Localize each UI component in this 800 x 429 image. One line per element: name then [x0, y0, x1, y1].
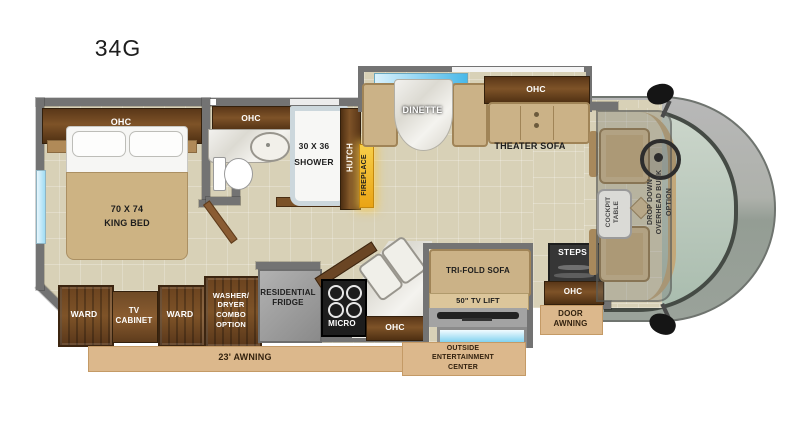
king-bed-label: 70 X 74 KING BED	[66, 198, 188, 234]
kitchen-ohc-label: OHC	[366, 316, 424, 339]
theater-sofa	[488, 102, 590, 144]
shower-label: 30 X 36 SHOWER	[290, 134, 338, 174]
tv-lift-label: 50" TV LIFT	[429, 293, 527, 308]
door-awning-label: DOOR AWNING	[540, 305, 601, 333]
pillow	[72, 131, 126, 157]
theater-sofa-ohc-label: OHC	[484, 76, 588, 102]
outside-entertainment-label: OUTSIDE ENTERTAINMENT CENTER	[402, 342, 524, 374]
drop-down-bunk-label: DROP DOWN OVERHEAD BUNK OPTION	[644, 154, 676, 250]
page-title: 34G	[88, 34, 148, 62]
cab-join-wall	[588, 102, 618, 110]
fridge-label: RESIDENTIAL FRIDGE	[258, 284, 318, 312]
sofa-seam	[520, 106, 521, 140]
rear-window	[36, 170, 46, 244]
bath-sink-drain	[266, 143, 270, 147]
king-bed: 70 X 74 KING BED	[66, 126, 188, 258]
wardrobe-left-label: WARD	[58, 285, 110, 343]
slide-window-strip	[452, 67, 584, 72]
fridge-wall-lip	[256, 262, 320, 269]
burner	[346, 285, 362, 301]
theater-sofa-label: THEATER SOFA	[468, 141, 592, 153]
burner	[328, 302, 344, 318]
tri-fold-sofa-label: TRI-FOLD SOFA	[429, 249, 527, 293]
wardrobe-right-label: WARD	[158, 285, 202, 343]
bath-ohc-label: OHC	[212, 106, 290, 130]
dinette-label: DINETTE	[392, 104, 453, 118]
floorplan-canvas: 34G OHC 70 X 74 KING BED WARD TV CABINET…	[0, 0, 800, 429]
pillow	[129, 131, 183, 157]
fireplace-label: FIREPLACE	[359, 135, 371, 215]
micro-label: MICRO	[321, 318, 363, 330]
burner	[328, 285, 344, 301]
toilet-bowl	[224, 158, 253, 190]
tv-cabinet-label: TV CABINET	[112, 291, 156, 341]
burner	[346, 302, 362, 318]
bath-sink	[250, 132, 290, 162]
awning-label: 23' AWNING	[88, 346, 402, 370]
shower-skylight	[290, 99, 339, 105]
entry-ohc-label: OHC	[544, 281, 602, 303]
cupholder	[534, 112, 539, 117]
cockpit-table-label: COCKPIT TABLE	[603, 186, 623, 238]
cupholder	[534, 123, 539, 128]
dinette-bench	[452, 83, 488, 147]
washer-dryer-label: WASHER/ DRYER COMBO OPTION	[204, 276, 258, 344]
tv-stand	[462, 318, 492, 321]
hutch-label: HUTCH	[344, 118, 357, 198]
sofa-seam	[553, 106, 554, 140]
step-tread	[558, 265, 590, 270]
step-tread	[554, 273, 594, 278]
